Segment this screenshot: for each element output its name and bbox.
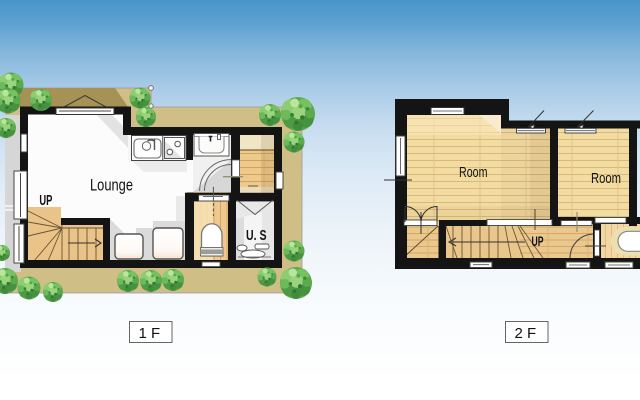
svg-text:2 F: 2 F [515, 325, 537, 342]
svg-text:Room: Room [459, 164, 488, 181]
svg-text:UP: UP [532, 234, 544, 249]
svg-text:1 F: 1 F [139, 325, 161, 342]
svg-text:UP: UP [39, 192, 52, 209]
svg-text:Room: Room [591, 170, 621, 187]
svg-text:U. S: U. S [246, 227, 267, 244]
svg-text:Lounge: Lounge [90, 177, 133, 195]
